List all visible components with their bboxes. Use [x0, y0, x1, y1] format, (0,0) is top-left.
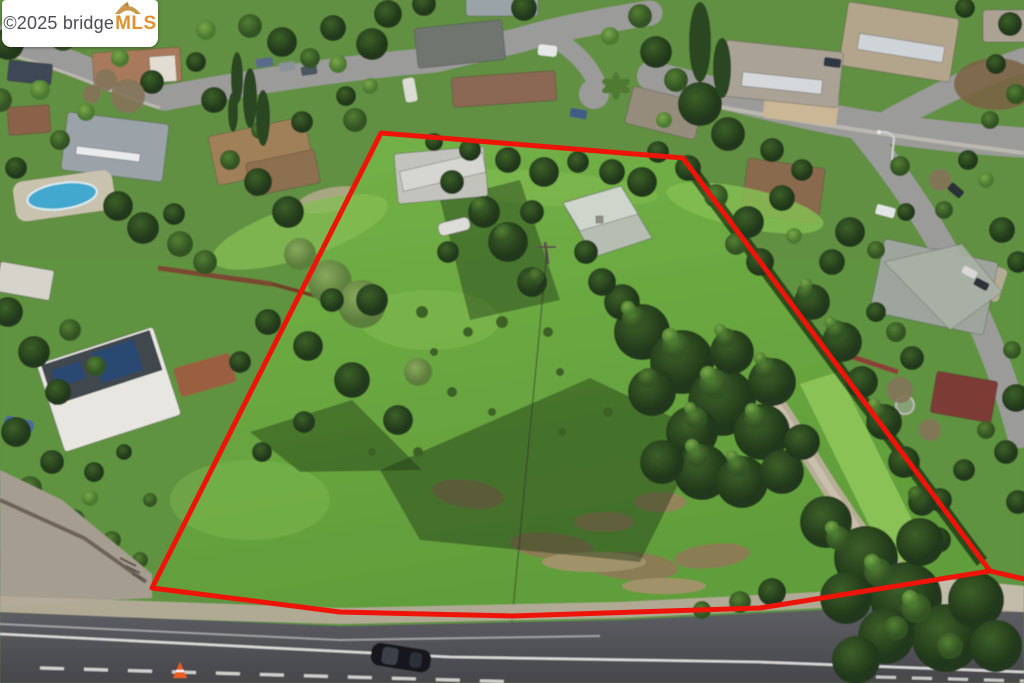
brand-name: bridge: [63, 13, 114, 34]
aerial-photo-canvas: [0, 0, 1024, 683]
copyright-text: ©2025: [3, 13, 63, 34]
bridge-arch-icon: [114, 2, 142, 14]
brand-suffix-text: MLS: [115, 13, 157, 34]
brand-suffix: MLS: [115, 13, 157, 35]
aerial-photo: ©2025 bridgeMLS: [0, 0, 1024, 683]
watermark-badge: ©2025 bridgeMLS: [2, 0, 158, 47]
watermark-text: ©2025 bridgeMLS: [3, 13, 156, 35]
